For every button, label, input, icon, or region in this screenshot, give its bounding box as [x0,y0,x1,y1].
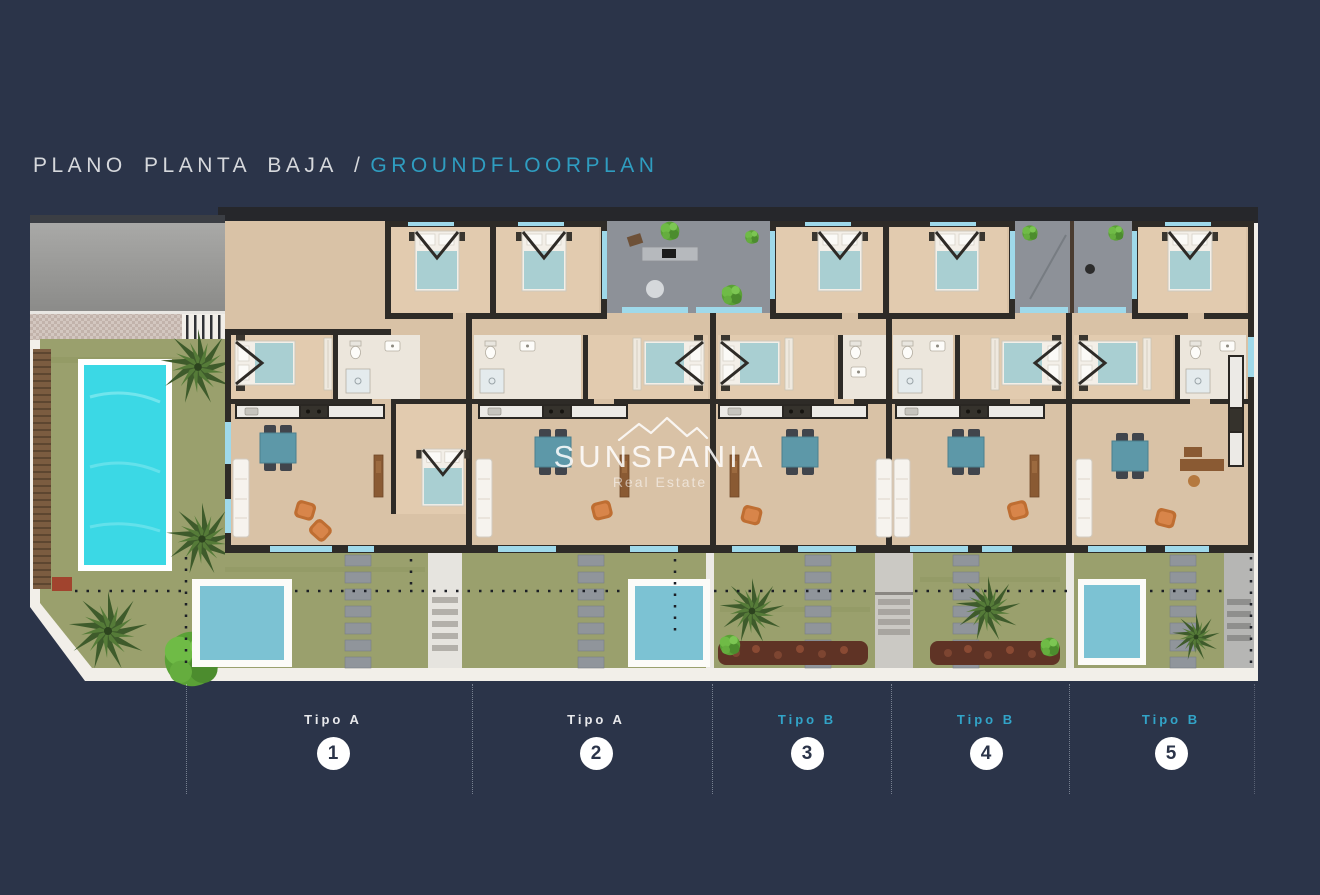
sofa [1076,459,1092,537]
courtyard-plant [661,222,680,241]
stepping-stones [1170,555,1196,668]
label-separator [891,684,892,794]
bed [644,335,704,391]
courtyard-plant [722,285,742,305]
title-english: GROUNDFLOORPLAN [370,154,658,177]
toilet [485,341,496,359]
stepping-stones [345,555,371,668]
bed [929,231,985,291]
unit-number-badge: 1 [317,737,350,770]
wardrobe [1143,338,1151,390]
unit-number-badge: 4 [970,737,1003,770]
interior-door [1030,455,1039,497]
interior-door [374,455,383,497]
unit-label-1: Tipo A 1 [273,712,393,770]
sink [520,341,535,351]
mulch-bed [930,638,1060,665]
unit-number-badge: 3 [791,737,824,770]
unit-type-label: Tipo B [1111,712,1231,727]
bed [416,449,469,506]
plunge-pool-5 [1078,579,1146,665]
courtyard-plant [745,230,759,244]
toilet [1190,341,1201,359]
plunge-pool-1 [192,579,292,667]
shower [480,369,504,393]
stepping-stones [578,555,604,668]
sofa [876,459,892,537]
unit-type-label: Tipo B [926,712,1046,727]
flower-pot [52,577,72,591]
label-separator [1254,684,1255,794]
unit-type-label: Tipo B [747,712,867,727]
kitchen-counter [718,404,868,419]
kitchen-counter [895,404,1045,419]
sofa [476,459,492,537]
entry-courtyard-b [1015,221,1132,313]
shower [1186,369,1210,393]
interior-door [730,455,739,497]
bed [1162,231,1218,291]
sidewalk-paving [30,314,182,340]
unit-type-label: Tipo A [273,712,393,727]
floor-plan-image [30,207,1258,687]
side-stairs [1224,553,1254,668]
pergola [33,349,51,589]
toilet [350,341,361,359]
unit-label-3: Tipo B 3 [747,712,867,770]
unit-number-badge: 2 [580,737,613,770]
interior-door [620,455,629,497]
central-walkway [875,553,913,668]
sofa [894,459,910,537]
sink [930,341,945,351]
bed [1002,335,1062,391]
toilet [902,341,913,359]
bed [720,335,780,391]
unit-number-badge: 5 [1155,737,1188,770]
wardrobe [633,338,641,390]
toilet [850,341,861,359]
kitchen-counter [478,404,628,419]
kitchen-counter [235,404,385,419]
shower [346,369,370,393]
presentation-slide: { "title": { "left": "PLANO PLANTA BAJA … [0,0,1320,895]
label-separator [1069,684,1070,794]
wardrobe [991,338,999,390]
bed [516,231,572,291]
bed [409,231,465,291]
shower [898,369,922,393]
sofa [233,459,249,537]
label-separator [712,684,713,794]
sink [1220,341,1235,351]
unit-label-2: Tipo A 2 [536,712,656,770]
garden-divider [1066,553,1074,668]
building [225,221,1254,553]
communal-pool [78,359,172,571]
bed [235,335,295,391]
bed [812,231,868,291]
kitchen-counter [1228,355,1244,467]
building-roof-edge [218,207,1258,223]
courtyard-plant [1022,225,1037,240]
unit-type-label: Tipo A [536,712,656,727]
wardrobe [785,338,793,390]
plunge-pool-2 [628,579,710,667]
unit-label-4: Tipo B 4 [926,712,1046,770]
garden-divider-stairs [428,553,462,668]
label-separator [186,684,187,794]
courtyard-plant [1108,225,1123,240]
label-separator [472,684,473,794]
entry-courtyard-a [607,221,770,313]
page-title: PLANO PLANTA BAJA /GROUNDFLOORPLAN [33,154,658,178]
sink [851,367,866,377]
sink [385,341,400,351]
unit-label-5: Tipo B 5 [1111,712,1231,770]
title-spanish: PLANO PLANTA BAJA / [33,154,364,177]
wardrobe [324,338,332,390]
private-gardens [75,553,1254,668]
bed [1078,335,1138,391]
